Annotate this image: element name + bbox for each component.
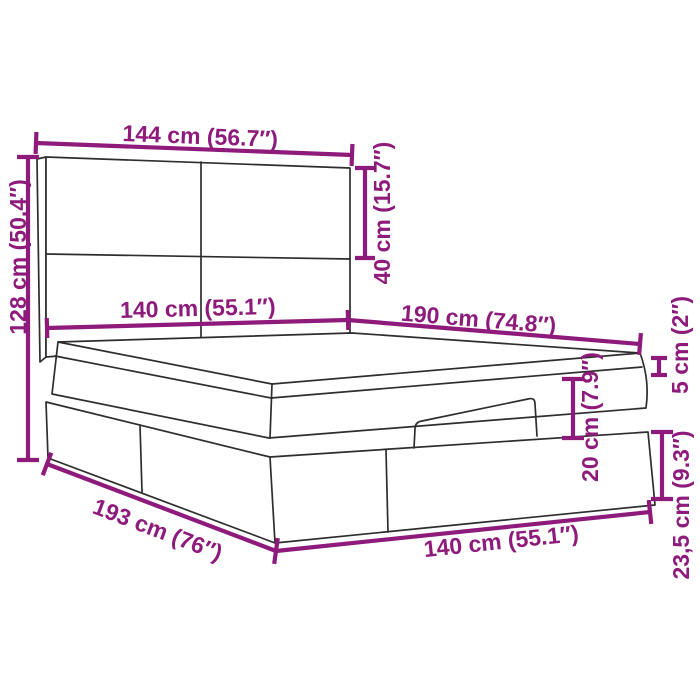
dim-tick: [47, 318, 48, 338]
mattress-body: [52, 333, 647, 438]
dim-overall-height: 128 cm (50.4″): [5, 157, 39, 460]
dim-base-height: 23,5 cm (9.3″): [651, 430, 694, 579]
dim-frame-lip: 5 cm (2″): [651, 296, 693, 394]
dim-frame-lip-label: 5 cm (2″): [667, 296, 693, 394]
dim-mattress-width-label: 140 cm (55.1″): [120, 293, 276, 323]
dim-tick: [639, 333, 641, 355]
bed-drawing: [37, 157, 655, 543]
dim-headboard-panel-height-label: 40 cm (15.7″): [369, 142, 395, 285]
dim-tick: [352, 144, 353, 166]
diagram-canvas: 144 cm (56.7″) 128 cm (50.4″) 40 cm (15.…: [0, 0, 700, 700]
headboard: [37, 157, 350, 362]
dim-overall-height-label: 128 cm (50.4″): [5, 179, 31, 335]
headboard-side-panel: [37, 157, 46, 362]
dim-base-height-label: 23,5 cm (9.3″): [668, 430, 694, 579]
dim-tick: [649, 500, 652, 524]
dim-tick: [36, 132, 37, 154]
mattress: [52, 333, 647, 438]
dim-headboard-panel-height: 40 cm (15.7″): [355, 142, 395, 285]
bed-dimension-diagram: 144 cm (56.7″) 128 cm (50.4″) 40 cm (15.…: [0, 0, 700, 700]
dim-mattress-height-label: 20 cm (7.9″): [577, 352, 603, 482]
